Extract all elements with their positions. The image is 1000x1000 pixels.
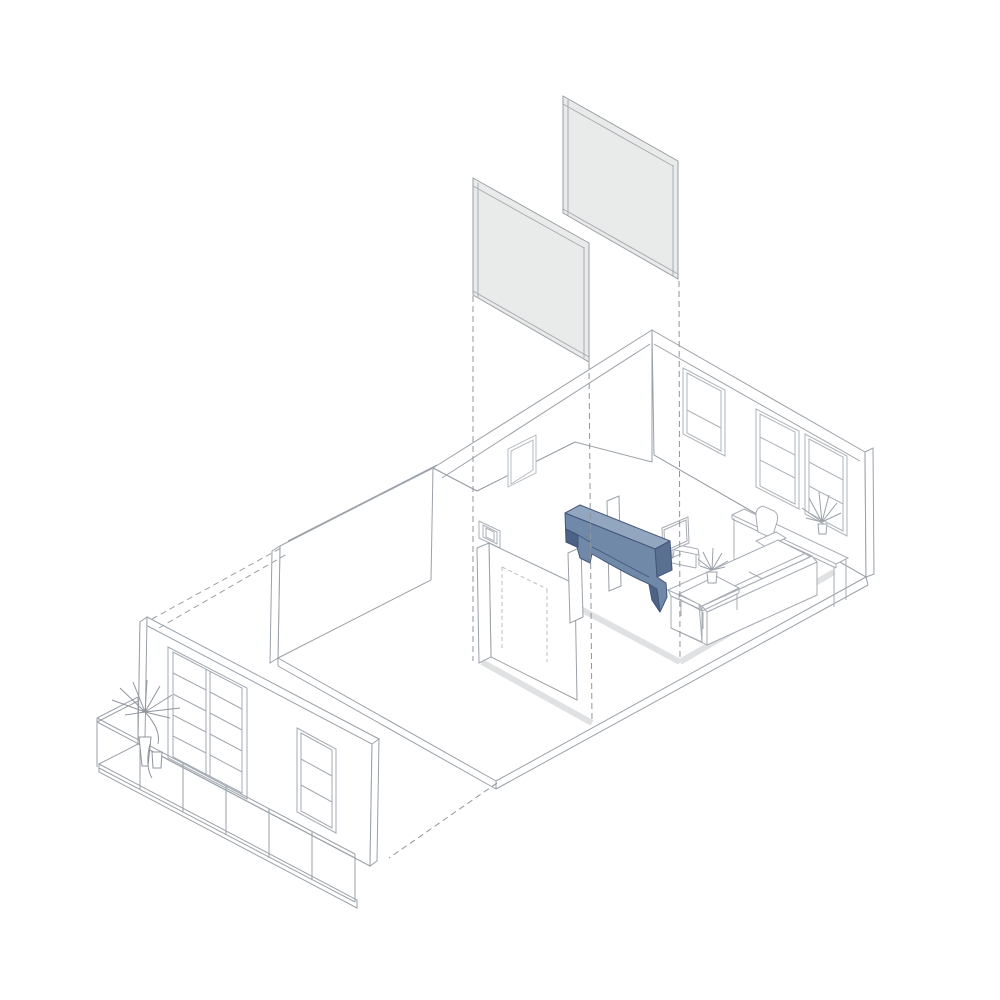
- wall-end-cap: [865, 448, 874, 577]
- floor-track-arch: [577, 607, 680, 662]
- axonometric-diagram: [0, 0, 1000, 1000]
- drawing-canvas: [0, 0, 1000, 1000]
- back-wall: [433, 330, 652, 491]
- left-room-wall: [270, 465, 437, 663]
- partition-assembly: [477, 543, 583, 700]
- floor-connection-dash: [389, 783, 497, 858]
- facade-connection-dashes: [152, 548, 287, 628]
- partition-wall-cap: [477, 543, 491, 663]
